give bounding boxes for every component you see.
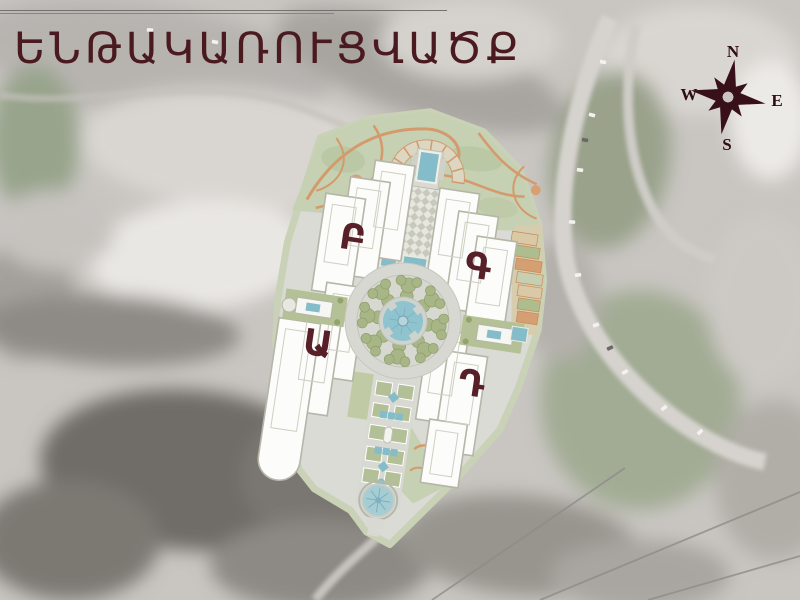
slide: Ա Բ Գ Դ N W E S ԵՆԹԱԿԱՌՈՒՑՎԱԾՔ <box>0 0 800 600</box>
building-label-a: Ա <box>300 322 335 367</box>
compass-south-label: S <box>722 135 731 154</box>
compass-east-label: E <box>771 91 782 110</box>
slide-title: ԵՆԹԱԿԱՌՈՒՑՎԱԾՔ <box>14 24 574 74</box>
compass-north-label: N <box>727 42 740 61</box>
title-underline <box>0 10 447 11</box>
site-plan-rendering: Ա Բ Գ Դ N W E S <box>0 0 800 600</box>
title-underline-secondary <box>0 13 334 14</box>
compass-west-label: W <box>681 85 698 104</box>
upper-basin <box>416 151 440 184</box>
